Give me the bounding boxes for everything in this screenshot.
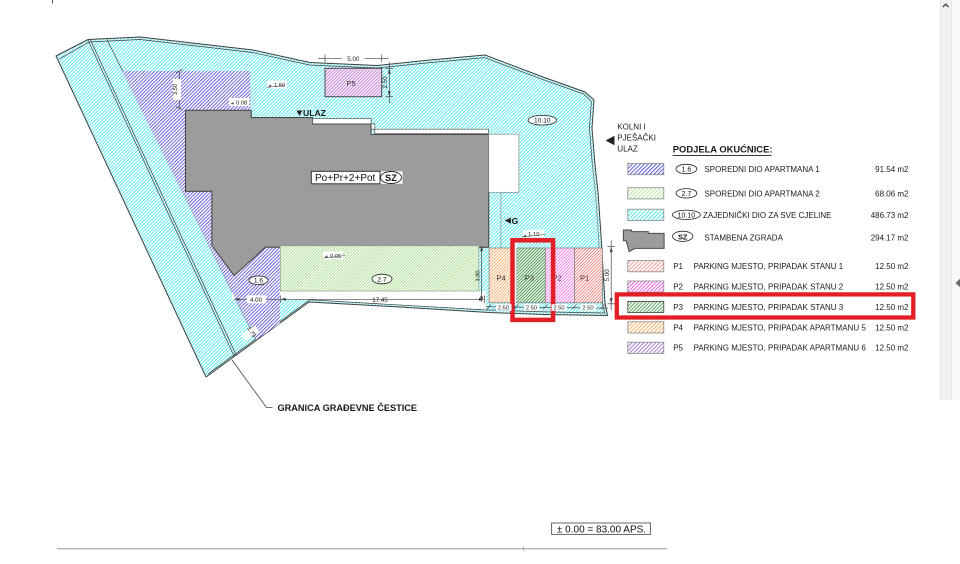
svg-text:G: G bbox=[512, 216, 519, 226]
svg-text:PARKING MJESTO, PRIPADAK APART: PARKING MJESTO, PRIPADAK APARTMANU 6 bbox=[694, 344, 867, 353]
svg-text:12.50 m2: 12.50 m2 bbox=[875, 323, 909, 332]
svg-text:17.45: 17.45 bbox=[372, 297, 388, 304]
svg-text:PARKING MJESTO, PRIPADAK STANU: PARKING MJESTO, PRIPADAK STANU 3 bbox=[694, 303, 844, 312]
svg-text:STAMBENA ZGRADA: STAMBENA ZGRADA bbox=[704, 233, 783, 242]
svg-text:2.50: 2.50 bbox=[553, 306, 564, 312]
svg-text:PODJELA OKUĆNICE:: PODJELA OKUĆNICE: bbox=[673, 143, 773, 154]
svg-text:KOLNI I: KOLNI I bbox=[617, 122, 645, 131]
svg-text:91.54 m2: 91.54 m2 bbox=[875, 165, 909, 174]
svg-text:P4: P4 bbox=[497, 274, 506, 283]
svg-text:1.10: 1.10 bbox=[528, 232, 539, 238]
svg-text:GRANICA GRAĐEVNE ČESTICE: GRANICA GRAĐEVNE ČESTICE bbox=[278, 402, 418, 413]
svg-text:PARKING MJESTO, PRIPADAK STANU: PARKING MJESTO, PRIPADAK STANU 1 bbox=[694, 262, 844, 271]
svg-text:12.50 m2: 12.50 m2 bbox=[875, 303, 909, 312]
svg-text:486.73 m2: 486.73 m2 bbox=[871, 211, 909, 220]
svg-text:P1: P1 bbox=[673, 262, 683, 271]
svg-text:P3: P3 bbox=[673, 303, 683, 312]
svg-text:0.08: 0.08 bbox=[236, 101, 247, 107]
svg-text:3.50: 3.50 bbox=[173, 84, 179, 95]
svg-text:10.10: 10.10 bbox=[678, 212, 696, 219]
svg-text:P3: P3 bbox=[525, 274, 534, 283]
svg-text:2.50: 2.50 bbox=[526, 306, 537, 312]
svg-text:10.10: 10.10 bbox=[534, 118, 551, 125]
svg-text:12.50 m2: 12.50 m2 bbox=[875, 262, 909, 271]
svg-text:1.50: 1.50 bbox=[274, 83, 285, 89]
svg-text:12.50 m2: 12.50 m2 bbox=[875, 344, 909, 353]
svg-text:2.50: 2.50 bbox=[582, 306, 593, 312]
svg-text:PARKING MJESTO, PRIPADAK STANU: PARKING MJESTO, PRIPADAK STANU 2 bbox=[694, 283, 844, 292]
svg-text:SPOREDNI DIO APARTMANA 1: SPOREDNI DIO APARTMANA 1 bbox=[704, 165, 820, 174]
svg-text:SZ: SZ bbox=[678, 232, 688, 241]
svg-text:5.00: 5.00 bbox=[604, 269, 611, 282]
svg-text:Po+Pr+2+Pot: Po+Pr+2+Pot bbox=[315, 173, 376, 184]
svg-text:P4: P4 bbox=[673, 323, 683, 332]
svg-text:P1: P1 bbox=[580, 274, 589, 283]
svg-text:4.00: 4.00 bbox=[250, 297, 263, 304]
svg-text:P2: P2 bbox=[673, 283, 683, 292]
svg-text:PARKING MJESTO, PRIPADAK APART: PARKING MJESTO, PRIPADAK APARTMANU 5 bbox=[694, 323, 867, 332]
svg-text:ZAJEDNIČKI DIO ZA SVE CJELINE: ZAJEDNIČKI DIO ZA SVE CJELINE bbox=[703, 211, 831, 220]
svg-text:2.7: 2.7 bbox=[377, 276, 386, 283]
svg-text:ULAZ: ULAZ bbox=[617, 145, 638, 154]
svg-text:P5: P5 bbox=[347, 79, 356, 88]
svg-text:SZ: SZ bbox=[385, 173, 397, 183]
svg-text:68.06 m2: 68.06 m2 bbox=[875, 189, 909, 198]
svg-text:2.50: 2.50 bbox=[498, 306, 509, 312]
svg-text:3.90: 3.90 bbox=[476, 270, 482, 281]
svg-text:1.6: 1.6 bbox=[682, 167, 692, 174]
svg-text:± 0.00 = 83.00 APS.: ± 0.00 = 83.00 APS. bbox=[557, 525, 646, 536]
svg-text:ULAZ: ULAZ bbox=[303, 108, 326, 118]
svg-text:P5: P5 bbox=[673, 344, 683, 353]
svg-text:12.50 m2: 12.50 m2 bbox=[875, 283, 909, 292]
svg-text:2.50: 2.50 bbox=[382, 76, 389, 89]
svg-text:PJEŠAČKI: PJEŠAČKI bbox=[617, 134, 656, 143]
svg-text:2.7: 2.7 bbox=[682, 191, 692, 198]
svg-text:1.6: 1.6 bbox=[254, 278, 263, 285]
svg-text:5.00: 5.00 bbox=[347, 56, 360, 63]
svg-text:294.17 m2: 294.17 m2 bbox=[871, 233, 909, 242]
svg-text:SPOREDNI DIO APARTMANA 2: SPOREDNI DIO APARTMANA 2 bbox=[704, 189, 820, 198]
